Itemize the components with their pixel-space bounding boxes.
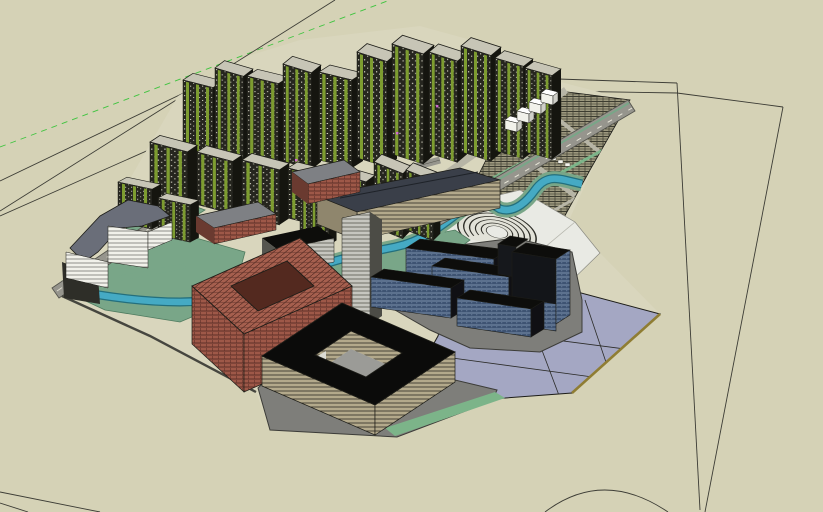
viewport-canvas[interactable] [0, 0, 823, 512]
model-viewport[interactable] [0, 0, 823, 512]
